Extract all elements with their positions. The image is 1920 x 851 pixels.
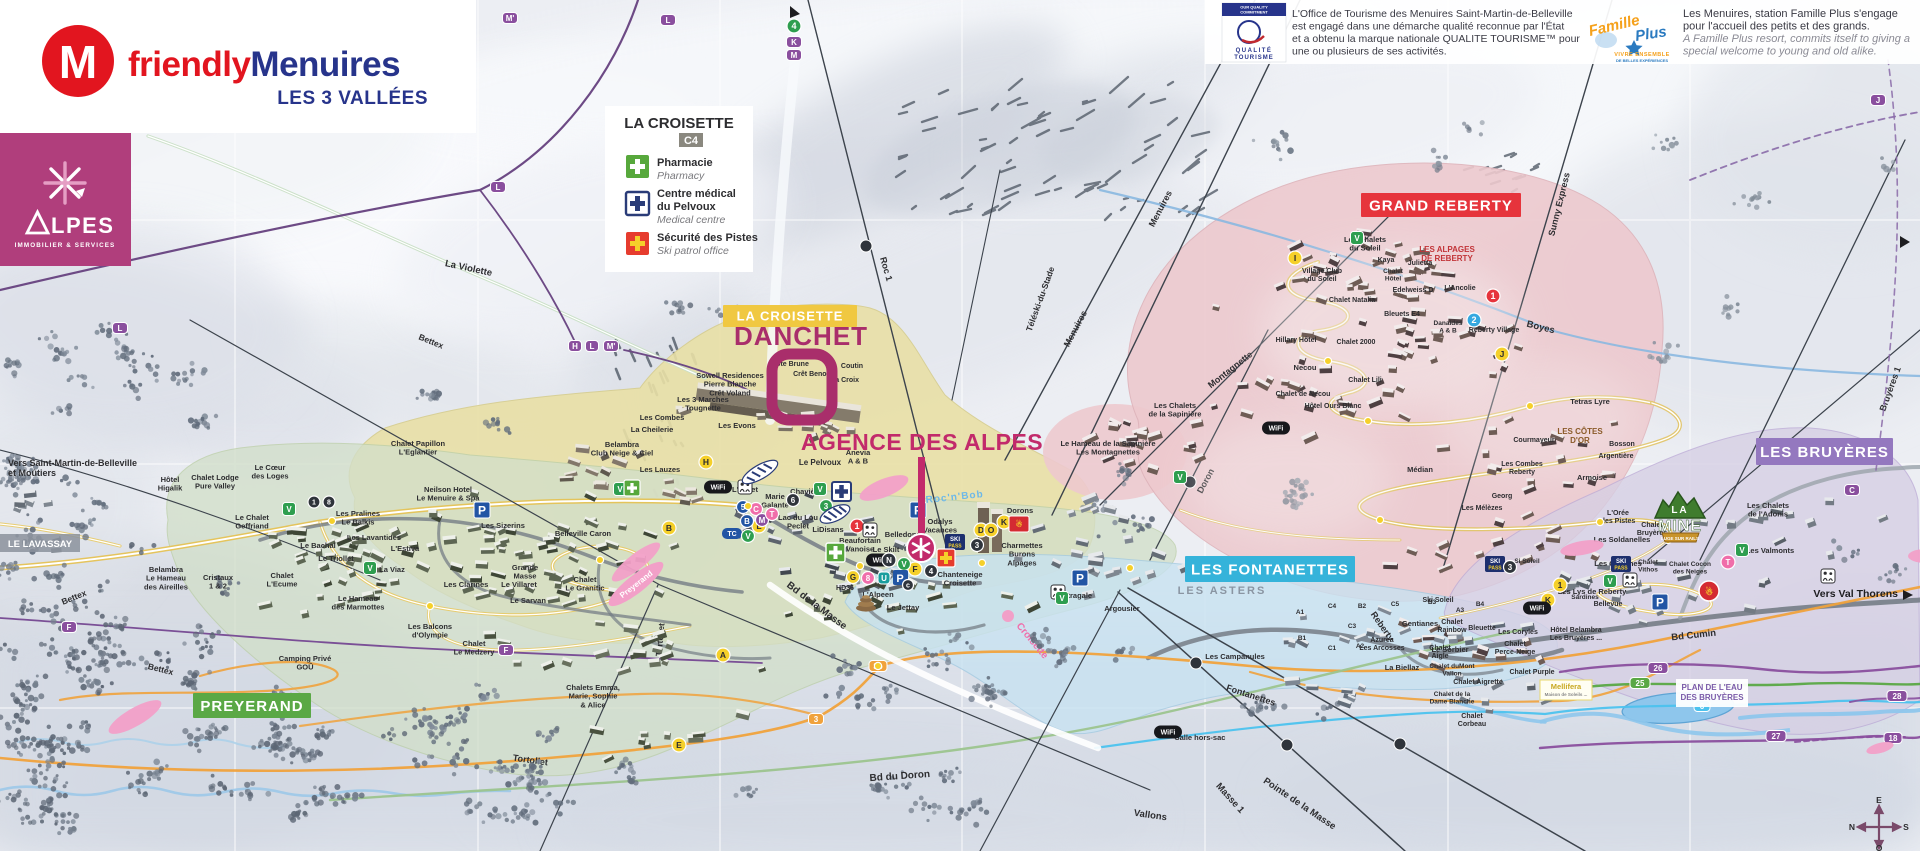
svg-text:SKI: SKI <box>1490 559 1500 565</box>
svg-text:Mellifera: Mellifera <box>1551 682 1582 691</box>
svg-text:PLAN DE L'EAUDES BRUYÈRES: PLAN DE L'EAUDES BRUYÈRES <box>1680 683 1744 702</box>
svg-text:DE BELLES EXPÉRIENCES: DE BELLES EXPÉRIENCES <box>1616 58 1668 63</box>
svg-text:Chalet Purple: Chalet Purple <box>1509 669 1554 676</box>
svg-text:Ski Soleil: Ski Soleil <box>1422 597 1453 604</box>
svg-text:S: S <box>1903 822 1909 832</box>
svg-text:Hillary Hôtel: Hillary Hôtel <box>1276 337 1317 344</box>
svg-text:Les Lavantides: Les Lavantides <box>347 533 401 542</box>
svg-text:ChaletHôtel: ChaletHôtel <box>1383 268 1404 283</box>
svg-text:LA: LA <box>1671 505 1688 516</box>
svg-text:Les Chaletsde l'Adonis: Les Chaletsde l'Adonis <box>1747 501 1789 519</box>
svg-text:Tetras Lyre: Tetras Lyre <box>1570 397 1610 406</box>
svg-text:IMMOBILIER & SERVICES: IMMOBILIER & SERVICES <box>15 242 116 249</box>
svg-text:MINE: MINE <box>1658 518 1702 535</box>
svg-text:☃: ☃ <box>1705 586 1713 597</box>
svg-text:Kaya: Kaya <box>1378 257 1395 264</box>
svg-text:V: V <box>1739 546 1745 555</box>
svg-text:V: V <box>901 560 907 569</box>
svg-text:SKI: SKI <box>950 537 960 543</box>
svg-text:TC: TC <box>727 531 736 538</box>
svg-text:B: B <box>666 523 672 533</box>
svg-text:M: M <box>59 36 97 88</box>
svg-text:V: V <box>745 532 751 541</box>
svg-text:Pharmacy: Pharmacy <box>657 170 705 182</box>
svg-text:T: T <box>770 510 775 519</box>
svg-text:Si Soleil: Si Soleil <box>1514 558 1539 565</box>
svg-text:WiFi: WiFi <box>1530 606 1545 613</box>
svg-text:special welcome to young and o: special welcome to young and old alike. <box>1683 46 1877 58</box>
svg-text:Les Mélèzes: Les Mélèzes <box>1462 505 1503 512</box>
svg-text:K: K <box>791 38 797 47</box>
svg-text:Chalet LodgePure Valley: Chalet LodgePure Valley <box>191 473 239 491</box>
svg-text:O: O <box>988 525 995 535</box>
svg-text:Necou: Necou <box>1294 363 1317 372</box>
svg-text:3: 3 <box>975 541 980 550</box>
svg-text:HD36: HD36 <box>836 585 854 592</box>
svg-text:P: P <box>1656 596 1664 610</box>
svg-text:1: 1 <box>854 521 859 531</box>
svg-text:Les Lauzes: Les Lauzes <box>640 465 680 474</box>
svg-text:V: V <box>1607 577 1613 586</box>
svg-text:TOURISME: TOURISME <box>1234 55 1274 61</box>
svg-text:ChaletRainbow: ChaletRainbow <box>1437 619 1467 634</box>
svg-text:Les PralinesLe Balkis: Les PralinesLe Balkis <box>336 509 380 527</box>
svg-text:SKI: SKI <box>1616 559 1626 565</box>
svg-text:Les Sizerins: Les Sizerins <box>481 521 525 530</box>
svg-text:V: V <box>817 485 823 494</box>
svg-text:ChaletVithos: ChaletVithos <box>1638 559 1659 574</box>
svg-text:2: 2 <box>1471 315 1476 325</box>
svg-text:28: 28 <box>1893 692 1902 701</box>
svg-text:ChaletL'Ecume: ChaletL'Ecume <box>267 571 298 589</box>
svg-text:Les Combes: Les Combes <box>640 413 685 422</box>
svg-text:Belleville Caron: Belleville Caron <box>555 529 612 538</box>
svg-text:Les Coryles: Les Coryles <box>1498 629 1538 636</box>
svg-text:Les Evons: Les Evons <box>718 421 756 430</box>
svg-text:Chalet de Necou: Chalet de Necou <box>1276 391 1331 398</box>
svg-text:GRAND REBERTY: GRAND REBERTY <box>1369 197 1513 214</box>
svg-text:Courmayeur: Courmayeur <box>1513 437 1555 444</box>
svg-text:8: 8 <box>327 500 331 507</box>
svg-text:Les Valmonts: Les Valmonts <box>1746 546 1794 555</box>
svg-text:Chalet 2000: Chalet 2000 <box>1337 339 1376 346</box>
svg-text:LES FONTANETTES: LES FONTANETTES <box>1191 561 1349 578</box>
svg-text:Le Triollet: Le Triollet <box>318 554 354 563</box>
svg-text:1: 1 <box>1558 580 1563 590</box>
svg-text:4: 4 <box>791 21 796 31</box>
svg-text:Bosson: Bosson <box>1609 441 1635 448</box>
svg-text:Chalet Aigrette: Chalet Aigrette <box>1453 679 1503 686</box>
svg-text:Georg: Georg <box>1492 493 1513 500</box>
svg-text:Ski patrol office: Ski patrol office <box>657 245 729 257</box>
svg-text:Village Clubdu Soleil: Village Clubdu Soleil <box>1302 268 1342 283</box>
svg-text:V: V <box>1059 594 1065 603</box>
svg-text:HôtelHigalik: HôtelHigalik <box>158 475 183 493</box>
svg-text:LUGE SUR RAILS: LUGE SUR RAILS <box>1661 536 1699 541</box>
svg-text:M: M <box>791 51 798 60</box>
svg-text:LES ALPAGESDE REBERTY: LES ALPAGESDE REBERTY <box>1419 245 1475 263</box>
svg-text:8: 8 <box>866 574 871 583</box>
svg-text:L: L <box>666 16 671 25</box>
svg-text:I: I <box>1294 253 1296 263</box>
svg-text:Argentière: Argentière <box>1598 453 1633 460</box>
svg-text:Le Pelvoux: Le Pelvoux <box>799 458 842 467</box>
svg-text:B2: B2 <box>1358 603 1367 610</box>
svg-text:WiFi: WiFi <box>1161 730 1176 737</box>
svg-text:OdalysVacances: OdalysVacances <box>923 517 957 535</box>
svg-text:F: F <box>67 623 72 632</box>
svg-text:B: B <box>744 517 750 526</box>
svg-text:Le Hameaudes Marmottes: Le Hameaudes Marmottes <box>332 594 385 612</box>
svg-text:J: J <box>1500 349 1505 359</box>
svg-text:Pharmacie: Pharmacie <box>657 157 713 169</box>
svg-text:Medical centre: Medical centre <box>657 214 725 226</box>
svg-text:AGENCE DES ALPES: AGENCE DES ALPES <box>801 429 1043 455</box>
svg-text:A Famille Plus resort, commits: A Famille Plus resort, commits itself to… <box>1682 33 1910 45</box>
svg-text:C1: C1 <box>1328 645 1337 652</box>
svg-text:L'Estiva: L'Estiva <box>391 544 420 553</box>
svg-text:V: V <box>286 505 292 514</box>
svg-text:Les Clarines: Les Clarines <box>444 580 489 589</box>
svg-text:ChanteneigeCroisette: ChanteneigeCroisette <box>937 570 982 588</box>
svg-text:Vers Val Thorens: Vers Val Thorens <box>1813 588 1898 600</box>
svg-text:Crêt Benoit: Crêt Benoit <box>793 371 831 378</box>
svg-text:friendlyMenuires: friendlyMenuires <box>128 45 400 84</box>
svg-text:COMMITMENT: COMMITMENT <box>1240 10 1268 15</box>
svg-text:3: 3 <box>1508 563 1513 572</box>
svg-text:27: 27 <box>1772 732 1781 741</box>
svg-text:LiDisans: LiDisans <box>812 525 843 534</box>
svg-text:BelambraLe Hameaudes Aireilles: BelambraLe Hameaudes Aireilles <box>144 565 188 591</box>
svg-text:A3: A3 <box>1456 607 1465 614</box>
svg-text:H: H <box>572 342 578 351</box>
svg-text:Sardines: Sardines <box>1571 594 1599 601</box>
svg-text:LES ASTERS: LES ASTERS <box>1178 585 1267 597</box>
svg-text:L: L <box>118 324 123 333</box>
svg-text:Les Chaletsde la Sapinière: Les Chaletsde la Sapinière <box>1149 401 1202 419</box>
svg-text:Bleuets E4: Bleuets E4 <box>1384 311 1420 318</box>
svg-text:F: F <box>912 564 917 574</box>
svg-text:QUALITÉ: QUALITÉ <box>1236 46 1273 54</box>
svg-text:GrandeMasse: GrandeMasse <box>512 563 538 581</box>
svg-text:Le Villaret: Le Villaret <box>501 580 537 589</box>
svg-text:C: C <box>753 505 759 514</box>
svg-text:La Viaz: La Viaz <box>379 565 405 574</box>
svg-text:1: 1 <box>312 500 316 507</box>
svg-text:PASS: PASS <box>1614 566 1628 572</box>
svg-text:Edelweiss D: Edelweiss D <box>1393 287 1434 294</box>
svg-text:C3: C3 <box>1348 623 1357 630</box>
svg-text:Les Campanules: Les Campanules <box>1205 652 1265 661</box>
svg-text:Le ChaletGeffriand: Le ChaletGeffriand <box>235 513 269 531</box>
svg-text:☃: ☃ <box>1015 519 1022 529</box>
svg-text:et a obtenu la marque national: et a obtenu la marque nationale QUALITE … <box>1292 33 1580 45</box>
svg-text:C5: C5 <box>1391 601 1400 608</box>
svg-text:du Pelvoux: du Pelvoux <box>657 201 717 213</box>
svg-text:ChaletCorbeau: ChaletCorbeau <box>1458 713 1486 728</box>
svg-text:PREYERAND: PREYERAND <box>200 698 303 715</box>
svg-text:Coutin: Coutin <box>841 363 863 370</box>
svg-text:WiFi: WiFi <box>1269 426 1284 433</box>
svg-text:M': M' <box>607 342 616 351</box>
svg-text:Reberty Village: Reberty Village <box>1469 327 1520 334</box>
svg-text:Les Menuires, station Famille: Les Menuires, station Famille Plus s'eng… <box>1683 8 1898 20</box>
svg-text:Le Bachal: Le Bachal <box>300 541 335 550</box>
svg-text:K: K <box>1001 517 1008 527</box>
svg-text:Médian: Médian <box>1407 465 1433 474</box>
svg-text:MarieGalante: MarieGalante <box>761 492 789 510</box>
svg-text:Les Balconsd'Olympie: Les Balconsd'Olympie <box>408 622 452 640</box>
svg-text:Maison de Soleils ...: Maison de Soleils ... <box>1545 692 1588 697</box>
svg-text:V: V <box>367 564 373 573</box>
svg-text:25: 25 <box>1636 679 1645 688</box>
svg-text:c: c <box>906 583 910 590</box>
svg-text:Bellevue: Bellevue <box>1594 601 1623 608</box>
svg-text:LA CROISETTE: LA CROISETTE <box>624 115 733 132</box>
svg-text:PASS: PASS <box>1488 566 1502 572</box>
svg-text:G: G <box>850 573 856 582</box>
svg-text:J: J <box>1876 96 1880 105</box>
svg-text:Argousier: Argousier <box>1104 604 1140 613</box>
svg-text:E: E <box>676 740 682 750</box>
svg-text:L: L <box>590 342 595 351</box>
svg-text:Bleuette: Bleuette <box>1468 625 1496 632</box>
svg-text:H: H <box>703 457 709 467</box>
svg-text:M': M' <box>506 14 515 23</box>
svg-text:6: 6 <box>791 496 796 505</box>
svg-text:DANCHET: DANCHET <box>734 321 868 351</box>
svg-text:WiFi: WiFi <box>711 485 726 492</box>
svg-text:B4: B4 <box>1476 601 1485 608</box>
svg-text:Centre médical: Centre médical <box>657 188 736 200</box>
svg-text:LES 3 VALLÉES: LES 3 VALLÉES <box>277 87 428 109</box>
svg-text:Chalet de laDame Blanche: Chalet de laDame Blanche <box>1430 691 1475 706</box>
svg-text:Dorons: Dorons <box>1007 506 1033 515</box>
svg-text:LES BRUYÈRES: LES BRUYÈRES <box>1760 444 1889 461</box>
svg-text:O: O <box>1876 843 1883 851</box>
svg-text:26: 26 <box>1654 664 1663 673</box>
svg-text:Le Sarvan: Le Sarvan <box>510 596 546 605</box>
svg-text:V: V <box>1354 234 1360 243</box>
svg-text:pour l'accueil des petits et d: pour l'accueil des petits et des grands. <box>1683 21 1870 33</box>
svg-text:Chalet Lili: Chalet Lili <box>1348 377 1382 384</box>
svg-text:ChaletAigle: ChaletAigle <box>1429 645 1451 660</box>
svg-text:M: M <box>759 516 766 525</box>
svg-text:L'Ancolie: L'Ancolie <box>1444 285 1475 292</box>
svg-text:Chalet Natalia: Chalet Natalia <box>1329 297 1375 304</box>
svg-text:V: V <box>617 485 623 494</box>
svg-text:L: L <box>496 183 501 192</box>
svg-text:18: 18 <box>1889 734 1898 743</box>
svg-text:La Cheilerie: La Cheilerie <box>631 425 674 434</box>
svg-text:T: T <box>1726 558 1731 567</box>
svg-text:F: F <box>504 646 509 655</box>
svg-text:Sécurité des Pistes: Sécurité des Pistes <box>657 232 758 244</box>
svg-text:P: P <box>1076 572 1084 586</box>
svg-text:La Biellaz: La Biellaz <box>1385 663 1420 672</box>
svg-text:N: N <box>1849 822 1855 832</box>
svg-text:est engagé dans une démarche q: est engagé dans une démarche qualité rec… <box>1292 20 1564 33</box>
svg-text:C: C <box>1849 486 1855 495</box>
svg-text:Hôtel Ours Blanc: Hôtel Ours Blanc <box>1305 403 1362 410</box>
svg-text:A1: A1 <box>1296 609 1305 616</box>
svg-text:E: E <box>1876 795 1882 805</box>
svg-text:N: N <box>886 556 892 565</box>
svg-text:Chalet Cocondes Neiges: Chalet Cocondes Neiges <box>1669 561 1711 576</box>
svg-text:P: P <box>478 504 486 518</box>
svg-text:B1: B1 <box>1298 635 1307 642</box>
svg-text:3: 3 <box>814 715 819 724</box>
svg-text:4: 4 <box>929 567 934 576</box>
svg-text:1: 1 <box>1490 291 1495 301</box>
svg-text:Le Skilt: Le Skilt <box>873 545 900 554</box>
svg-text:Le Cœurdes Loges: Le Cœurdes Loges <box>251 463 288 481</box>
svg-text:C4: C4 <box>684 135 699 147</box>
svg-text:Neilson HotelLe Menuire & Spa: Neilson HotelLe Menuire & Spa <box>417 485 481 503</box>
svg-text:D: D <box>978 525 984 535</box>
svg-text:U: U <box>881 574 887 583</box>
svg-text:A: A <box>720 650 726 660</box>
svg-text:Le Jettay: Le Jettay <box>887 603 920 612</box>
svg-text:Armoise: Armoise <box>1577 473 1607 482</box>
svg-text:une ou plusieurs de ses activi: une ou plusieurs de ses activités. <box>1292 46 1447 58</box>
svg-text:V: V <box>1177 473 1183 482</box>
svg-text:Hôtel BelambraLes Bruyères ...: Hôtel BelambraLes Bruyères ... <box>1550 627 1602 642</box>
svg-text:L'Office de Tourisme des Menui: L'Office de Tourisme des Menuires Saint-… <box>1292 8 1573 20</box>
svg-text:Salle hors-sac: Salle hors-sac <box>1175 733 1226 742</box>
svg-text:LPES: LPES <box>51 213 114 238</box>
svg-text:LE LAVASSAY: LE LAVASSAY <box>8 539 73 550</box>
svg-text:C4: C4 <box>1328 603 1337 610</box>
svg-text:Gentianes: Gentianes <box>1402 619 1438 628</box>
